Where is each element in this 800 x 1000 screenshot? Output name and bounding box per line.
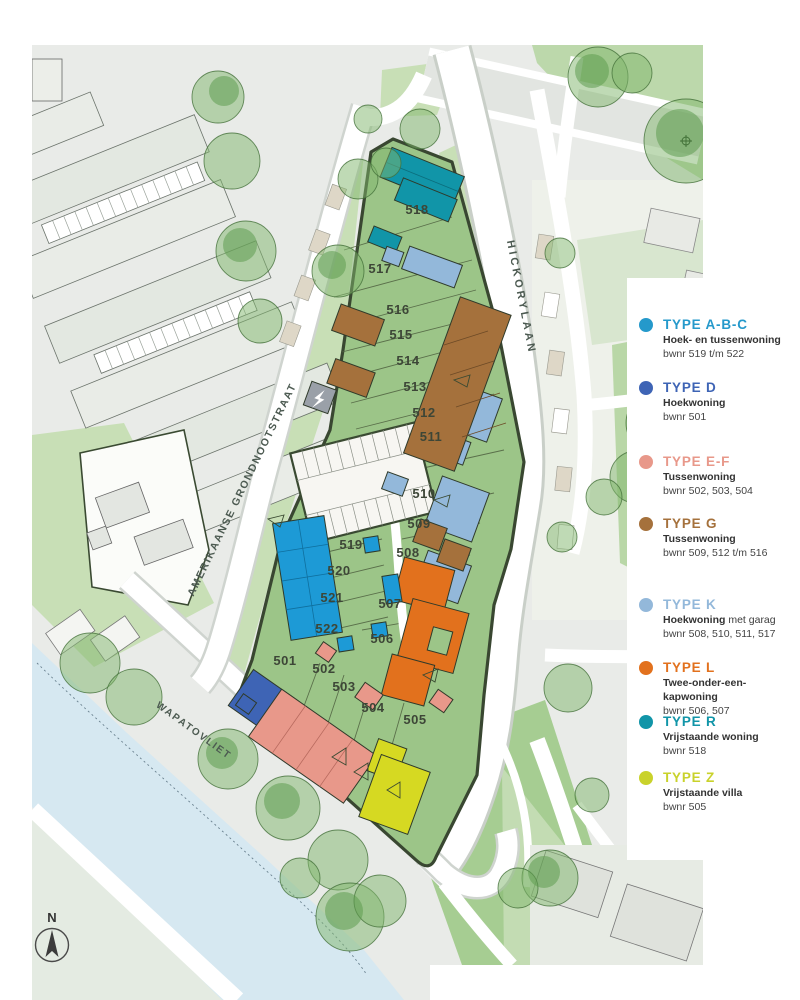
legend-item: TYPE DHoekwoningbwnr 501 bbox=[639, 379, 725, 424]
legend-color-dot bbox=[639, 381, 653, 395]
legend-color-dot bbox=[639, 455, 653, 469]
legend-item-description: Hoekwoning met garag bbox=[663, 613, 776, 627]
site-plan-page: HICKORYLAANAMERIKAANSE GRONDNOOTSTRAATWA… bbox=[0, 0, 800, 1000]
plot-label-505: 505 bbox=[403, 712, 426, 727]
legend-item-description: Vrijstaande villa bbox=[663, 786, 742, 800]
legend-color-dot bbox=[639, 771, 653, 785]
plot-label-501: 501 bbox=[273, 653, 296, 668]
legend-item-description: Vrijstaande woning bbox=[663, 730, 759, 744]
legend-item: TYPE GTussenwoningbwnr 509, 512 t/m 516 bbox=[639, 515, 767, 560]
plot-label-502: 502 bbox=[312, 661, 335, 676]
legend-item: TYPE E-FTussenwoningbwnr 502, 503, 504 bbox=[639, 453, 753, 498]
plot-label-519: 519 bbox=[339, 537, 362, 552]
plot-label-511: 511 bbox=[420, 429, 442, 444]
legend-item-bwnr: bwnr 519 t/m 522 bbox=[663, 347, 781, 361]
legend-item: TYPE A-B-CHoek- en tussenwoningbwnr 519 … bbox=[639, 316, 781, 361]
legend-panel: TYPE A-B-CHoek- en tussenwoningbwnr 519 … bbox=[627, 278, 800, 860]
legend-item-description: Hoekwoning bbox=[663, 396, 725, 410]
legend-color-dot bbox=[639, 715, 653, 729]
legend-item-title: TYPE D bbox=[663, 379, 725, 396]
plot-label-508: 508 bbox=[396, 545, 419, 560]
plot-label-512: 512 bbox=[412, 405, 435, 420]
legend-item-title: TYPE Z bbox=[663, 769, 742, 786]
plot-label-503: 503 bbox=[332, 679, 355, 694]
north-label: N bbox=[32, 910, 72, 926]
plot-label-514: 514 bbox=[396, 353, 419, 368]
legend-item: TYPE ZVrijstaande villabwnr 505 bbox=[639, 769, 742, 814]
legend-item-title: TYPE G bbox=[663, 515, 767, 532]
margin-patch bbox=[430, 965, 703, 1000]
plot-label-521: 521 bbox=[320, 590, 343, 605]
plot-label-513: 513 bbox=[403, 379, 426, 394]
legend-item: TYPE KHoekwoning met garagbwnr 508, 510,… bbox=[639, 596, 776, 641]
legend-item-title: TYPE E-F bbox=[663, 453, 753, 470]
plot-label-515: 515 bbox=[389, 327, 412, 342]
compass-icon bbox=[32, 926, 72, 966]
legend-color-dot bbox=[639, 517, 653, 531]
legend-item-description: Tussenwoning bbox=[663, 470, 753, 484]
north-arrow: N bbox=[32, 910, 72, 971]
legend-color-dot bbox=[639, 598, 653, 612]
plot-label-504: 504 bbox=[361, 700, 384, 715]
legend-item-description: Twee-onder-een-kapwoning bbox=[663, 676, 800, 704]
plot-label-507: 507 bbox=[378, 596, 401, 611]
legend-item-title: TYPE K bbox=[663, 596, 776, 613]
map-canvas: HICKORYLAANAMERIKAANSE GRONDNOOTSTRAATWA… bbox=[32, 45, 703, 1000]
legend-item-description: Tussenwoning bbox=[663, 532, 767, 546]
plot-label-516: 516 bbox=[386, 302, 409, 317]
legend-item-bwnr: bwnr 518 bbox=[663, 744, 759, 758]
legend-item-bwnr: bwnr 505 bbox=[663, 800, 742, 814]
plot-label-509: 509 bbox=[407, 516, 430, 531]
legend-item: TYPE LTwee-onder-een-kapwoningbwnr 506, … bbox=[639, 659, 800, 718]
legend-item-description: Hoek- en tussenwoning bbox=[663, 333, 781, 347]
legend-color-dot bbox=[639, 318, 653, 332]
legend-item: TYPE RVrijstaande woningbwnr 518 bbox=[639, 713, 759, 758]
legend-color-dot bbox=[639, 661, 653, 675]
legend-item-bwnr: bwnr 501 bbox=[663, 410, 725, 424]
legend-item-title: TYPE L bbox=[663, 659, 800, 676]
plot-label-510: 510 bbox=[412, 486, 435, 501]
plot-label-520: 520 bbox=[327, 563, 350, 578]
legend-item-bwnr: bwnr 508, 510, 511, 517 bbox=[663, 627, 776, 641]
plot-label-522: 522 bbox=[315, 621, 338, 636]
plot-label-518: 518 bbox=[405, 202, 428, 217]
plot-label-517: 517 bbox=[368, 261, 391, 276]
legend-item-title: TYPE R bbox=[663, 713, 759, 730]
legend-item-bwnr: bwnr 509, 512 t/m 516 bbox=[663, 546, 767, 560]
legend-item-bwnr: bwnr 502, 503, 504 bbox=[663, 484, 753, 498]
plot-label-506: 506 bbox=[370, 631, 393, 646]
legend-item-title: TYPE A-B-C bbox=[663, 316, 781, 333]
